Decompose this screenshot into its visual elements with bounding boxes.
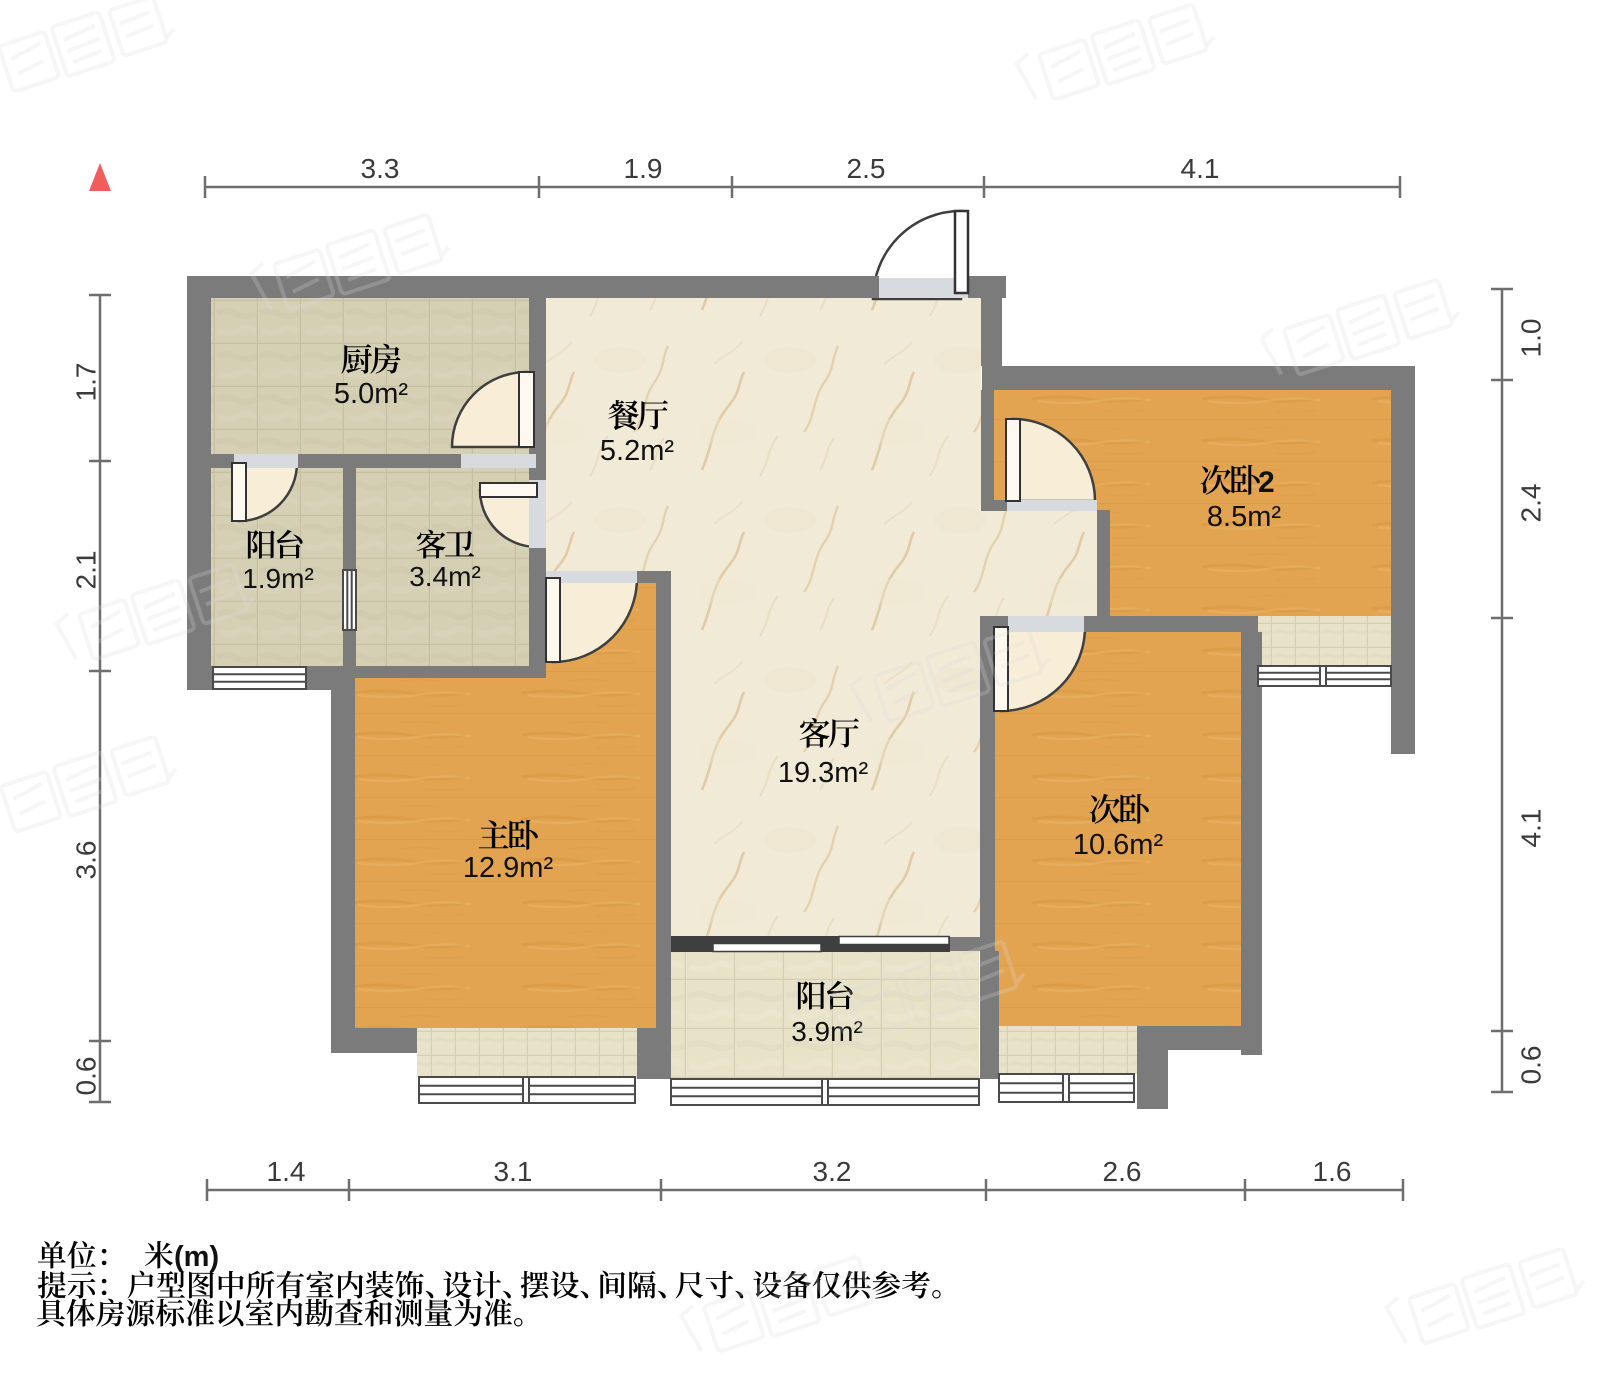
svg-text:3.4m²: 3.4m²	[409, 561, 481, 592]
svg-text:1.4: 1.4	[267, 1156, 306, 1187]
svg-text:5.0m²: 5.0m²	[334, 378, 408, 410]
svg-text:4.1: 4.1	[1515, 809, 1546, 848]
svg-text:2: 2	[1258, 466, 1275, 499]
svg-text:(m): (m)	[174, 1241, 219, 1273]
svg-text:19.3m²: 19.3m²	[778, 757, 869, 789]
svg-text:3.6: 3.6	[70, 841, 101, 880]
svg-text:0.6: 0.6	[1515, 1046, 1546, 1085]
svg-text:10.6m²: 10.6m²	[1073, 829, 1164, 861]
svg-text:2.6: 2.6	[1103, 1156, 1142, 1187]
svg-text:1.7: 1.7	[70, 363, 101, 402]
svg-text:2.5: 2.5	[847, 153, 886, 184]
svg-text:1.9: 1.9	[624, 153, 663, 184]
svg-text:3.2: 3.2	[813, 1156, 852, 1187]
svg-text:3.1: 3.1	[494, 1156, 533, 1187]
svg-text:2.1: 2.1	[70, 551, 101, 590]
svg-text:4.1: 4.1	[1181, 153, 1220, 184]
svg-text:1.0: 1.0	[1515, 319, 1546, 358]
svg-text:3.9m²: 3.9m²	[791, 1016, 863, 1047]
svg-text:1.6: 1.6	[1313, 1156, 1352, 1187]
svg-text:8.5m²: 8.5m²	[1207, 501, 1281, 533]
svg-text:3.3: 3.3	[361, 153, 400, 184]
svg-text:1.9m²: 1.9m²	[242, 563, 314, 594]
svg-text:2.4: 2.4	[1515, 484, 1546, 523]
svg-text:0.6: 0.6	[70, 1057, 101, 1096]
svg-text:12.9m²: 12.9m²	[463, 852, 554, 884]
svg-text:5.2m²: 5.2m²	[600, 435, 674, 467]
